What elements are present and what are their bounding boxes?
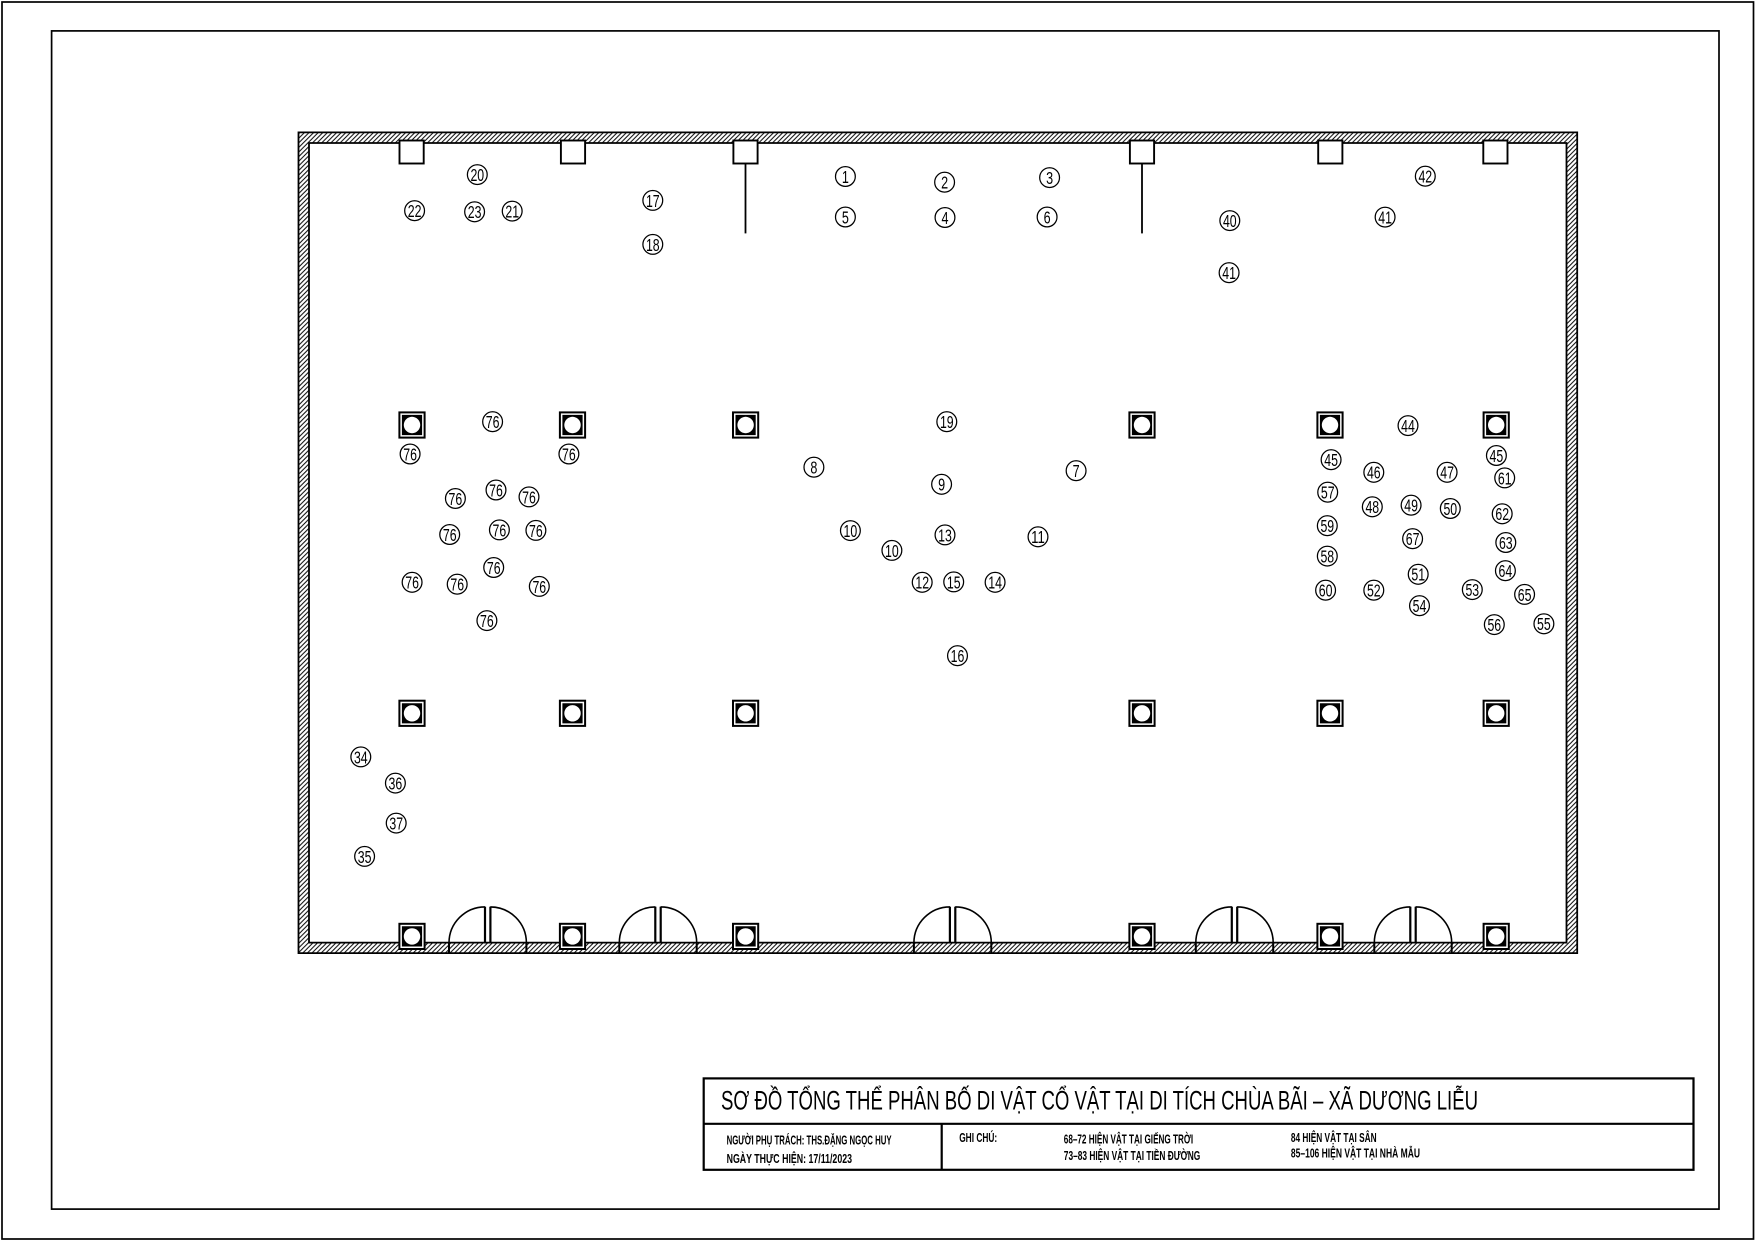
svg-text:46: 46 (1367, 463, 1381, 483)
svg-text:84 HIỆN VẬT TẠI SÂN: 84 HIỆN VẬT TẠI SÂN (1291, 1130, 1377, 1145)
svg-text:12: 12 (915, 573, 929, 593)
svg-text:41: 41 (1222, 263, 1236, 283)
svg-text:51: 51 (1411, 565, 1425, 585)
svg-text:52: 52 (1367, 581, 1381, 601)
svg-text:NGÀY THỰC HIỆN: 17/11/2023: NGÀY THỰC HIỆN: 17/11/2023 (727, 1151, 852, 1166)
svg-text:76: 76 (532, 577, 546, 597)
svg-text:21: 21 (505, 202, 519, 222)
svg-text:58: 58 (1320, 547, 1334, 567)
svg-text:76: 76 (403, 444, 417, 464)
svg-text:49: 49 (1404, 496, 1418, 516)
svg-text:6: 6 (1044, 207, 1051, 227)
svg-text:64: 64 (1499, 561, 1513, 581)
svg-text:56: 56 (1487, 615, 1501, 635)
svg-text:47: 47 (1440, 463, 1454, 483)
svg-text:7: 7 (1073, 461, 1080, 481)
svg-text:73–83 HIỆN VẬT TẠI TIỀN ĐƯỜNG: 73–83 HIỆN VẬT TẠI TIỀN ĐƯỜNG (1064, 1148, 1201, 1163)
svg-text:55: 55 (1537, 614, 1551, 634)
svg-text:10: 10 (885, 541, 899, 561)
svg-text:76: 76 (480, 611, 494, 631)
svg-text:9: 9 (938, 475, 945, 495)
svg-text:44: 44 (1401, 416, 1415, 436)
svg-text:NGƯỜI PHỤ TRÁCH: THS.ĐẶNG NGỌC: NGƯỜI PHỤ TRÁCH: THS.ĐẶNG NGỌC HUY (727, 1133, 892, 1148)
svg-text:59: 59 (1320, 516, 1334, 536)
svg-text:10: 10 (844, 521, 858, 541)
svg-text:85–106 HIỆN VẬT TẠI NHÀ MẪU: 85–106 HIỆN VẬT TẠI NHÀ MẪU (1291, 1146, 1420, 1161)
svg-text:57: 57 (1321, 483, 1335, 503)
svg-text:41: 41 (1378, 208, 1392, 228)
svg-text:53: 53 (1465, 580, 1479, 600)
svg-text:5: 5 (842, 207, 849, 227)
svg-text:54: 54 (1413, 596, 1427, 616)
svg-text:18: 18 (646, 235, 660, 255)
svg-text:45: 45 (1324, 450, 1338, 470)
svg-text:76: 76 (486, 412, 500, 432)
svg-text:16: 16 (951, 646, 965, 666)
svg-text:60: 60 (1319, 581, 1333, 601)
svg-text:36: 36 (389, 774, 403, 794)
svg-text:76: 76 (405, 573, 419, 593)
svg-text:76: 76 (522, 487, 536, 507)
svg-text:22: 22 (408, 201, 422, 221)
svg-text:50: 50 (1443, 499, 1457, 519)
svg-text:67: 67 (1406, 529, 1420, 549)
svg-text:8: 8 (810, 458, 817, 478)
svg-text:2: 2 (941, 173, 948, 193)
svg-text:20: 20 (470, 165, 484, 185)
svg-text:3: 3 (1046, 168, 1053, 188)
svg-text:76: 76 (489, 480, 503, 500)
svg-text:GHI CHÚ:: GHI CHÚ: (959, 1130, 997, 1145)
svg-text:15: 15 (947, 572, 961, 592)
svg-text:SƠ ĐỒ TỔNG THỂ PHÂN BỐ DI VẬT: SƠ ĐỒ TỔNG THỂ PHÂN BỐ DI VẬT CỔ VẬT TẠI… (721, 1084, 1478, 1116)
svg-text:76: 76 (493, 520, 507, 540)
svg-text:14: 14 (988, 573, 1002, 593)
svg-text:1: 1 (842, 167, 849, 187)
svg-text:76: 76 (487, 558, 501, 578)
svg-text:42: 42 (1418, 167, 1432, 187)
svg-text:11: 11 (1031, 527, 1045, 547)
svg-text:76: 76 (562, 444, 576, 464)
svg-text:23: 23 (468, 202, 482, 222)
svg-text:76: 76 (449, 489, 463, 509)
svg-text:13: 13 (938, 525, 952, 545)
svg-text:19: 19 (940, 412, 954, 432)
svg-text:4: 4 (942, 208, 949, 228)
svg-text:76: 76 (443, 525, 457, 545)
svg-text:61: 61 (1498, 468, 1512, 488)
svg-text:65: 65 (1518, 585, 1532, 605)
svg-text:68–72 HIỆN VẬT TẠI GIẾNG TRỜI: 68–72 HIỆN VẬT TẠI GIẾNG TRỜI (1064, 1131, 1193, 1146)
svg-text:34: 34 (354, 747, 368, 767)
svg-text:45: 45 (1490, 446, 1504, 466)
svg-text:63: 63 (1499, 533, 1513, 553)
svg-text:48: 48 (1365, 497, 1379, 517)
svg-text:62: 62 (1495, 504, 1509, 524)
svg-text:76: 76 (450, 575, 464, 595)
svg-text:17: 17 (646, 191, 660, 211)
svg-text:76: 76 (529, 521, 543, 541)
svg-text:40: 40 (1223, 211, 1237, 231)
svg-text:37: 37 (389, 814, 403, 834)
svg-text:35: 35 (358, 847, 372, 867)
